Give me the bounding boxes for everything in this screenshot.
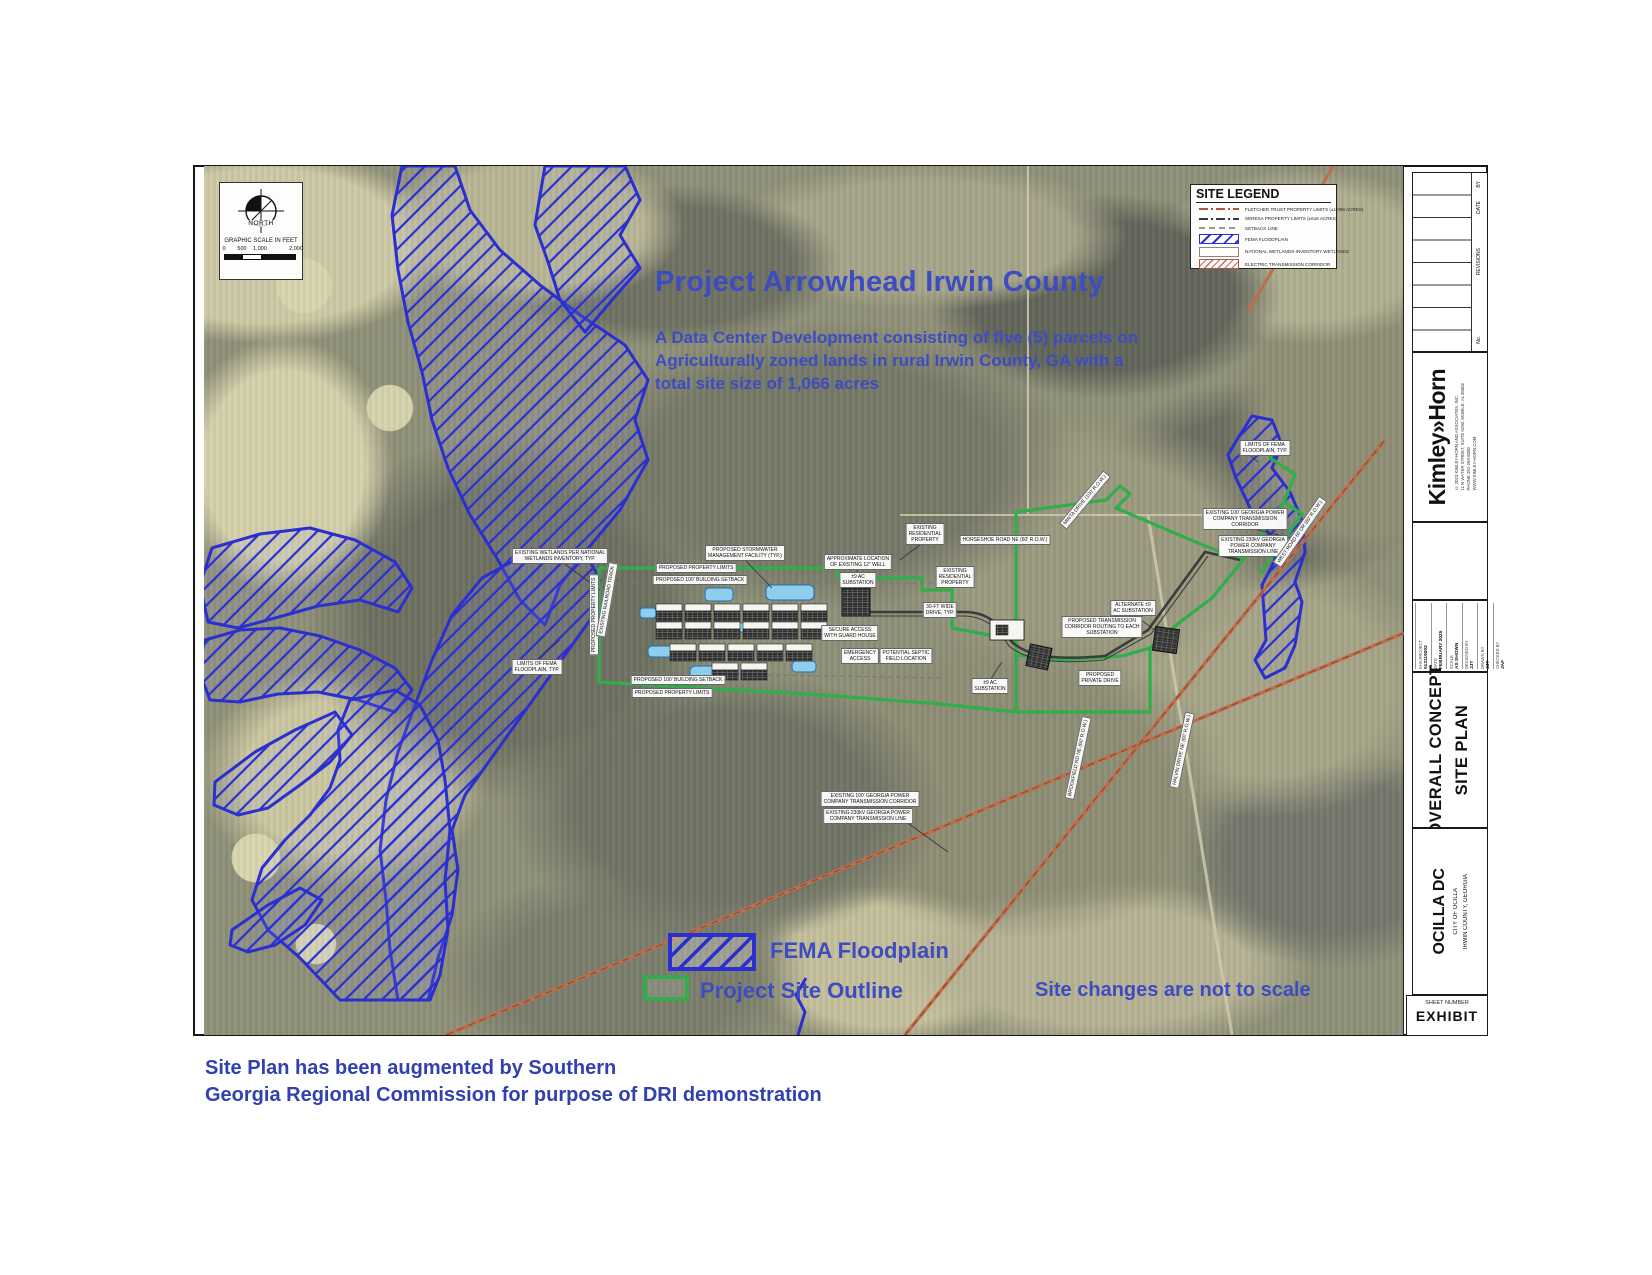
- map-annotation: PROPOSED PROPERTY LIMITS: [589, 575, 599, 656]
- north-label: NORTH: [247, 220, 275, 227]
- map-annotation: EMERGENCY ACCESS: [841, 648, 879, 664]
- client-county: IRWIN COUNTY, GEORGIA: [1463, 874, 1469, 949]
- site-legend-row: SERESA PROPERTY LIMITS (±616 ACRES): [1199, 215, 1331, 222]
- legend-row-text: SERESA PROPERTY LIMITS (±616 ACRES): [1245, 216, 1337, 221]
- proposed-transmission-route: [846, 552, 1240, 662]
- kimley-horn-address-line: 11 N WATER STREET, SUITE 9250, MOBILE, A…: [1460, 383, 1465, 490]
- sheet-number: EXHIBIT: [1407, 1008, 1487, 1024]
- kimley-horn-logo: Kimley»Horn: [1424, 369, 1451, 505]
- map-subtitle-line: Agriculturally zoned lands in rural Irwi…: [655, 349, 1138, 372]
- kimley-horn-address-line: WWW.KIMLEY-HORN.COM: [1472, 383, 1477, 490]
- site-legend-row: FEMA FLOODPLAIN: [1199, 234, 1331, 244]
- site-legend-title: SITE LEGEND: [1196, 187, 1331, 203]
- map-subtitle-line: total site size of 1,066 acres: [655, 372, 1138, 395]
- legend-row-text: ELECTRIC TRANSMISSION CORRIDOR: [1245, 262, 1330, 267]
- graphic-scale-title: GRAPHIC SCALE IN FEET: [224, 238, 297, 244]
- project-info-block: KHA PROJECT013119202DATEFEBRUARY 2025SCA…: [1412, 600, 1488, 672]
- scale-tick: 500: [237, 246, 246, 252]
- site-legend-row: SETBACK LINE: [1199, 225, 1331, 232]
- project-info-label: DESIGNED BY: [1464, 603, 1469, 669]
- map-annotation: 30-FT WIDE DRIVE, TYP.: [923, 602, 957, 618]
- revisions-date-header: DATE: [1476, 201, 1482, 214]
- project-info-label: CHECKED BY: [1495, 603, 1500, 669]
- project-info-row: DESIGNED BYJJT: [1462, 603, 1476, 669]
- kimley-horn-address-line: PHONE 251-263-8350: [1466, 383, 1471, 490]
- map-annotation: LIMITS OF FEMA FLOODPLAIN, TYP.: [512, 659, 563, 675]
- revisions-no-header: No.: [1476, 336, 1482, 344]
- map-subtitle: A Data Center Development consisting of …: [655, 326, 1138, 395]
- legend-swatch-icon: [1199, 247, 1239, 257]
- project-name-block: OCILLA DC CITY OF OCILLA IRWIN COUNTY, G…: [1412, 828, 1488, 995]
- legend-row-text: SETBACK LINE: [1245, 226, 1278, 231]
- map-annotation: SECURE ACCESS WITH GUARD HOUSE: [821, 625, 878, 641]
- sheet-number-block: SHEET NUMBER EXHIBIT: [1406, 995, 1488, 1036]
- north-arrow-scale-panel: NORTH GRAPHIC SCALE IN FEET 05001,0002,0…: [219, 182, 303, 280]
- augmentation-note-line1: Site Plan has been augmented by Southern: [205, 1055, 822, 1082]
- seal-box: [1412, 522, 1488, 600]
- legend-swatch-icon: [1199, 218, 1239, 220]
- site-legend-row: FLETCHER TRUST PROPERTY LIMITS (±1,066 A…: [1199, 206, 1331, 213]
- revisions-table: BY DATE REVISIONS No.: [1412, 172, 1488, 352]
- map-annotation: PROPOSED STORMWATER MANAGEMENT FACILITY …: [705, 545, 785, 561]
- project-info-value: JAF: [1501, 603, 1506, 669]
- project-info-value: AS SHOWN: [1455, 603, 1460, 669]
- map-annotation: EXISTING 100' GEORGIA POWER COMPANY TRAN…: [1203, 508, 1288, 530]
- map-annotation: ALTERNATE ±9 AC SUBSTATION: [1110, 600, 1156, 616]
- legend-row-text: FEMA FLOODPLAIN: [1245, 237, 1288, 242]
- project-info-row: KHA PROJECT013119202: [1415, 603, 1429, 669]
- map-annotation: PROPOSED PRIVATE DRIVE: [1078, 670, 1121, 686]
- map-annotation: EXISTING 230kV GEORGIA POWER COMPANY TRA…: [823, 808, 913, 824]
- project-site-outline-label: Project Site Outline: [700, 978, 903, 1004]
- scale-tick-labels: 05001,0002,000: [224, 246, 296, 253]
- map-annotation: PROPOSED PROPERTY LIMITS: [656, 563, 737, 573]
- scale-tick: 2,000: [289, 246, 303, 252]
- augmentation-note: Site Plan has been augmented by Southern…: [205, 1055, 822, 1109]
- site-legend-row: ELECTRIC TRANSMISSION CORRIDOR: [1199, 259, 1331, 269]
- map-subtitle-line: A Data Center Development consisting of …: [655, 326, 1138, 349]
- fema-floodplain-swatch: [668, 933, 756, 971]
- map-annotation: ±9 AC SUBSTATION: [839, 572, 876, 588]
- map-annotation: EXISTING RESIDENTIAL PROPERTY: [906, 523, 945, 545]
- revisions-by-header: BY: [1476, 181, 1482, 188]
- project-info-value: JJT: [1470, 603, 1475, 669]
- revisions-rows: [1413, 173, 1472, 351]
- scale-bar: [224, 254, 296, 260]
- project-name: OCILLA DC: [1431, 868, 1449, 955]
- scale-note: Site changes are not to scale: [1035, 979, 1311, 1002]
- project-info-label: DATE: [1433, 603, 1438, 669]
- project-info-row: DRAWN BYJJT: [1477, 603, 1491, 669]
- map-annotation: ±9 AC SUBSTATION: [971, 678, 1008, 694]
- map-annotation: APPROXIMATE LOCATION OF EXISTING 12" WEL…: [824, 554, 892, 570]
- project-info-row: DATEFEBRUARY 2025: [1431, 603, 1445, 669]
- scale-tick: 0: [222, 246, 225, 252]
- project-info-row: SCALEAS SHOWN: [1446, 603, 1460, 669]
- kimley-horn-address: © 2023 KIMLEY-HORN AND ASSOCIATES, INC.1…: [1454, 383, 1477, 490]
- project-site-outline-swatch: [643, 975, 689, 1001]
- revisions-header: REVISIONS: [1476, 248, 1482, 275]
- map-annotation: PROPOSED TRANSMISSION CORRIDOR ROUTING T…: [1061, 616, 1142, 638]
- augmentation-note-line2: Georgia Regional Commission for purpose …: [205, 1082, 822, 1109]
- sheet-title-line2: SITE PLAN: [1453, 705, 1472, 796]
- project-info-value: 013119202: [1424, 603, 1429, 669]
- legend-swatch-icon: [1199, 227, 1239, 229]
- sheet-number-label: SHEET NUMBER: [1407, 1000, 1487, 1006]
- legend-swatch-icon: [1199, 234, 1239, 244]
- north-arrow-icon: [220, 183, 302, 243]
- project-info-value: FEBRUARY 2025: [1439, 603, 1444, 669]
- map-annotation: POTENTIAL SEPTIC FIELD LOCATION: [879, 648, 932, 664]
- map-annotation: PROPOSED PROPERTY LIMITS: [632, 688, 713, 698]
- map-annotation: EXISTING WETLANDS PER NATIONAL WETLANDS …: [512, 548, 608, 564]
- project-info-row: CHECKED BYJAF: [1493, 603, 1507, 669]
- map-annotation: PROPOSED 100' BUILDING SETBACK: [653, 575, 748, 585]
- map-annotation: LIMITS OF FEMA FLOODPLAIN, TYP.: [1240, 440, 1291, 456]
- map-annotation: PROPOSED 100' BUILDING SETBACK: [631, 675, 726, 685]
- sheet-title-block: OVERALL CONCEPT SITE PLAN: [1412, 672, 1488, 828]
- legend-swatch-icon: [1199, 259, 1239, 269]
- map-annotation: EXISTING RESIDENTIAL PROPERTY: [936, 566, 975, 588]
- legend-row-text: FLETCHER TRUST PROPERTY LIMITS (±1,066 A…: [1245, 207, 1363, 212]
- legend-swatch-icon: [1199, 208, 1239, 210]
- map-annotation: EXISTING 100' GEORGIA POWER COMPANY TRAN…: [821, 791, 920, 807]
- legend-row-text: NATIONAL WETLANDS INVENTORY WETLANDS: [1245, 249, 1349, 254]
- map-title: Project Arrowhead Irwin County: [655, 266, 1104, 299]
- map-annotation: HORSESHOE ROAD NE (60' R.O.W.): [960, 535, 1051, 545]
- project-info-label: KHA PROJECT: [1418, 603, 1423, 669]
- kimley-horn-address-line: © 2023 KIMLEY-HORN AND ASSOCIATES, INC.: [1454, 383, 1459, 490]
- fema-floodplain-label: FEMA Floodplain: [770, 938, 949, 964]
- site-plan-exhibit: Project Arrowhead Irwin County A Data Ce…: [0, 0, 1652, 1275]
- sheet-title-line1: OVERALL CONCEPT: [1427, 664, 1446, 835]
- site-legend-rows: FLETCHER TRUST PROPERTY LIMITS (±1,066 A…: [1191, 206, 1336, 270]
- project-info-label: DRAWN BY: [1480, 603, 1485, 669]
- kimley-horn-logo-block: Kimley»Horn © 2023 KIMLEY-HORN AND ASSOC…: [1412, 352, 1488, 522]
- client-city: CITY OF OCILLA: [1453, 888, 1459, 935]
- project-info-label: SCALE: [1449, 603, 1454, 669]
- site-legend-panel: SITE LEGEND FLETCHER TRUST PROPERTY LIMI…: [1190, 184, 1337, 269]
- scale-tick: 1,000: [253, 246, 267, 252]
- site-legend-row: NATIONAL WETLANDS INVENTORY WETLANDS: [1199, 247, 1331, 257]
- project-info-value: JJT: [1486, 603, 1491, 669]
